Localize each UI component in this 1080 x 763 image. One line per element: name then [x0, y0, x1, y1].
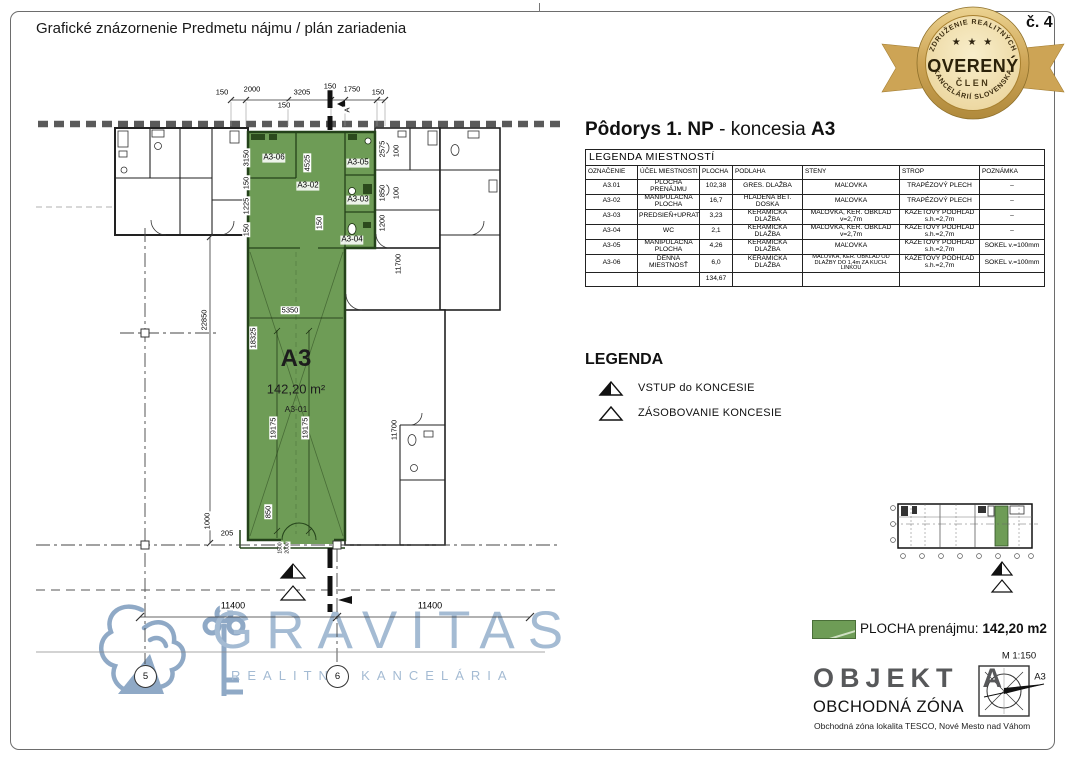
table-cell: SOKEL v.=100mm — [980, 254, 1045, 272]
table-cell: KAZETOVÝ PODHĽAD s.h.=2,7m — [900, 239, 980, 254]
badge-title: OVERENÝ — [927, 55, 1019, 76]
column-header: OZNAČENIE — [586, 166, 638, 180]
dim-label: 2575 — [378, 140, 386, 159]
grid-marker-5: 5 — [134, 665, 157, 688]
dim-label: 150 — [242, 223, 250, 238]
dim-label: 850 — [264, 505, 272, 520]
scale-label: M 1:150 — [1002, 651, 1036, 662]
table-cell — [803, 273, 900, 287]
table-cell — [900, 273, 980, 287]
room-label: A3-04 — [340, 236, 363, 245]
table-header-row: OZNAČENIE ÚČEL MIESTNOSTI PLOCHA PODLAHA… — [586, 166, 1045, 180]
dim-label: 100 — [392, 186, 400, 201]
room-label: A3-03 — [346, 196, 369, 205]
table-row: A3-06 DENNÁ MIESTNOSŤ 6,0 KERAMICKÁ DLAŽ… — [586, 254, 1045, 272]
table-total-value: 134,67 — [700, 273, 733, 287]
section-label: A — [343, 106, 351, 113]
column-header: STENY — [803, 166, 900, 180]
dim-label: 3150 — [242, 149, 250, 168]
badge-subtitle: ČLEN — [956, 77, 991, 88]
table-cell: MAĽOVKA — [803, 194, 900, 209]
table-cell: – — [980, 194, 1045, 209]
dim-label: 150 — [277, 101, 292, 109]
lease-area-value: 142,20 m2 — [982, 621, 1047, 636]
dim-label: 11400 — [220, 602, 246, 611]
table-cell — [733, 273, 803, 287]
table-cell: A3-04 — [586, 224, 638, 239]
table-title-row: LEGENDA MIESTNOSTÍ — [586, 150, 1045, 166]
table-cell: A3-02 — [586, 194, 638, 209]
table-cell: KAZETOVÝ PODHĽAD s.h.=2,7m — [900, 254, 980, 272]
dim-label: 5350 — [281, 306, 300, 314]
table-row: A3.01 PLOCHA PRENÁJMU 102,38 GRES. DLAŽB… — [586, 180, 1045, 195]
table-cell: 3,23 — [700, 209, 733, 224]
lease-area-summary: PLOCHA prenájmu: 142,20 m2 — [860, 621, 1047, 636]
legend-title: LEGENDA — [585, 351, 663, 369]
grid-marker-6: 6 — [326, 665, 349, 688]
room-label: A3-02 — [296, 182, 319, 191]
lease-area-label: PLOCHA prenájmu: — [860, 621, 979, 636]
table-row: A3-04 WC 2,1 KERAMICKÁ DLAŽBA MAĽOVKA, K… — [586, 224, 1045, 239]
dim-label: 150 — [215, 88, 230, 96]
column-header: PODLAHA — [733, 166, 803, 180]
table-cell: KERAMICKÁ DLAŽBA — [733, 224, 803, 239]
table-cell: MAĽOVKA, KER. OBKLAD v=2,7m — [803, 224, 900, 239]
dim-label: 2000 — [286, 541, 291, 554]
legend-item-label: VSTUP do KONCESIE — [638, 382, 755, 394]
dim-label: 150 — [242, 176, 250, 191]
dim-label: 205 — [220, 529, 235, 537]
sheet-heading-main: Pôdorys 1. NP — [585, 119, 714, 140]
table-title: LEGENDA MIESTNOSTÍ — [586, 150, 1045, 166]
fold-mark — [539, 3, 540, 12]
table-cell: TRAPÉZOVÝ PLECH — [900, 180, 980, 195]
table-cell: MAĽOVKA — [803, 180, 900, 195]
dim-label: 22850 — [200, 309, 208, 332]
dim-label: 4525 — [303, 154, 311, 173]
table-cell: MAĽOVKA — [803, 239, 900, 254]
dim-label: 18325 — [249, 327, 257, 350]
table-cell: MANIPULAČNÁ PLOCHA — [638, 194, 700, 209]
table-cell: – — [980, 209, 1045, 224]
table-row: A3-03 PREDSIEŇ+UPRATOVAČKA 3,23 KERAMICK… — [586, 209, 1045, 224]
table-cell — [638, 273, 700, 287]
sheet-heading: Pôdorys 1. NP - koncesia A3 — [585, 119, 835, 141]
table-cell — [586, 273, 638, 287]
sheet-heading-mid: - koncesia — [714, 119, 811, 140]
table-cell: KERAMICKÁ DLAŽBA — [733, 239, 803, 254]
legend-item-zasobovanie: ZÁSOBOVANIE KONCESIE — [596, 403, 782, 423]
table-cell — [980, 273, 1045, 287]
table-row: A3-02 MANIPULAČNÁ PLOCHA 16,7 HLADENÁ BE… — [586, 194, 1045, 209]
unit-room-code: A3-01 — [285, 404, 308, 414]
room-label: A3-06 — [262, 154, 285, 163]
document-title: Grafické znázornenie Predmetu nájmu / pl… — [36, 20, 406, 37]
room-legend-table: LEGENDA MIESTNOSTÍ OZNAČENIE ÚČEL MIESTN… — [585, 149, 1045, 287]
table-cell: 6,0 — [700, 254, 733, 272]
table-cell: 102,38 — [700, 180, 733, 195]
table-row: A3-05 MANIPULAČNÁ PLOCHA 4,26 KERAMICKÁ … — [586, 239, 1045, 254]
dim-label: 11700 — [390, 419, 398, 441]
object-variant: A — [983, 663, 1009, 693]
dim-label: 150 — [323, 82, 338, 90]
dim-label: 1500 — [279, 541, 284, 554]
legend-item-label: ZÁSOBOVANIE KONCESIE — [638, 407, 782, 419]
table-cell: MANIPULAČNÁ PLOCHA — [638, 239, 700, 254]
table-cell: SOKEL v.=100mm — [980, 239, 1045, 254]
table-cell: A3-03 — [586, 209, 638, 224]
table-cell: DENNÁ MIESTNOSŤ — [638, 254, 700, 272]
unit-area: 142,20 m² — [267, 382, 326, 397]
dim-label: 1225 — [242, 197, 250, 216]
dim-label: 150 — [371, 88, 386, 96]
dim-label: 100 — [392, 144, 400, 159]
column-header: POZNÁMKA — [980, 166, 1045, 180]
object-name: OBJEKT — [813, 663, 959, 693]
supply-triangle-icon — [281, 586, 305, 600]
dim-label: 2000 — [243, 85, 262, 93]
table-cell: 16,7 — [700, 194, 733, 209]
legend-item-vstup: VSTUP do KONCESIE — [596, 378, 755, 398]
table-cell: A3-06 — [586, 254, 638, 272]
table-cell: WC — [638, 224, 700, 239]
entrance-triangle-icon — [281, 564, 305, 578]
table-cell: PLOCHA PRENÁJMU — [638, 180, 700, 195]
dim-label: 150 — [315, 216, 323, 231]
overview-leased-strip — [995, 506, 1008, 546]
triangle-half-filled-icon — [596, 378, 626, 398]
table-cell: 4,26 — [700, 239, 733, 254]
table-cell: PREDSIEŇ+UPRATOVAČKA — [638, 209, 700, 224]
dim-label: 11700 — [394, 253, 402, 275]
table-cell: 2,1 — [700, 224, 733, 239]
page: { "page": {"title": "Grafické znázorneni… — [0, 0, 1080, 763]
sheet-format-label: A3 — [1034, 672, 1046, 683]
unit-label: A3 — [281, 345, 312, 373]
dim-label: 3205 — [293, 88, 312, 96]
triangle-outline-icon — [596, 403, 626, 423]
sheet-heading-unit: A3 — [811, 119, 835, 140]
table-cell: HLADENÁ BET. DOSKA — [733, 194, 803, 209]
zone-title: OBCHODNÁ ZÓNA — [813, 698, 964, 717]
table-cell: MAĽOVKA, KER. OBKLAD v=2,7m — [803, 209, 900, 224]
zone-location: Obchodná zóna lokalita TESCO, Nové Mesto… — [814, 721, 1030, 731]
table-cell: KAZETOVÝ PODHĽAD s.h.=2,7m — [900, 209, 980, 224]
table-cell: KERAMICKÁ DLAŽBA — [733, 209, 803, 224]
dim-label: 19175 — [301, 417, 309, 440]
table-cell: A3-05 — [586, 239, 638, 254]
dim-label: 19175 — [269, 417, 277, 440]
column-header: PLOCHA — [700, 166, 733, 180]
dim-label: 11400 — [417, 602, 443, 611]
dim-label: 1850 — [378, 184, 386, 203]
dim-label: 1200 — [378, 214, 386, 233]
table-cell: – — [980, 180, 1045, 195]
table-cell: MAĽOVKA, KER. OBKLAD OD DLAŽBY DO 1,4m Z… — [803, 254, 900, 272]
overview-map — [890, 504, 1038, 592]
column-header: ÚČEL MIESTNOSTI — [638, 166, 700, 180]
table-cell: – — [980, 224, 1045, 239]
badge-stars-icon: ★ ★ ★ — [952, 37, 994, 48]
table-cell: KERAMICKÁ DLAŽBA — [733, 254, 803, 272]
table-cell: TRAPÉZOVÝ PLECH — [900, 194, 980, 209]
table-cell: KAZETOVÝ PODHĽAD s.h.=2,7m — [900, 224, 980, 239]
column-header: STROP — [900, 166, 980, 180]
dim-label: 1000 — [203, 512, 211, 531]
room-label: A3-05 — [346, 159, 369, 168]
table-cell: A3.01 — [586, 180, 638, 195]
dim-label: 1750 — [343, 85, 362, 93]
object-title: OBJEKTA — [813, 663, 1008, 694]
lease-area-swatch — [812, 620, 856, 639]
table-total-row: 134,67 — [586, 273, 1045, 287]
table-cell: GRES. DLAŽBA — [733, 180, 803, 195]
verified-member-badge: ZDRUŽENIE REALITNÝCH KANCELÁRIÍ SLOVENSK… — [876, 0, 1074, 128]
